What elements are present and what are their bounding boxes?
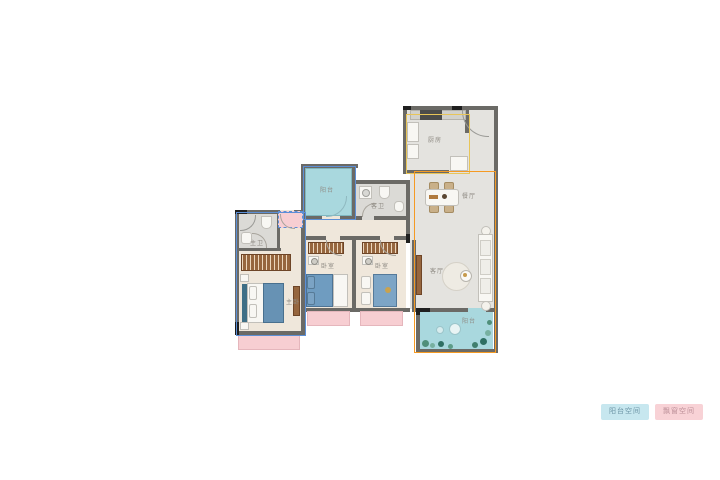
bedroom-b-label: 卧室 <box>375 264 389 271</box>
wall-bedroom-divider <box>352 240 356 312</box>
plant-icon <box>485 330 491 336</box>
bedroom-a-bay-window <box>307 311 350 326</box>
legend-bay-window-space[interactable]: 飘窗空间 <box>655 404 703 420</box>
kitchen-label: 厨房 <box>428 138 442 145</box>
wall-accent-bedroom-b <box>406 234 410 243</box>
master-bay-window <box>238 335 300 350</box>
floor-plan: 厨房 餐厅 客厅 阳台 阳台 客卫 主卫 主卧 卧室 卧室 <box>222 104 500 362</box>
wall-master-bath-bottom <box>239 248 281 251</box>
pillow-icon <box>249 286 257 300</box>
bedroom-a-label: 卧室 <box>321 264 335 271</box>
dining-table-runner <box>429 195 438 199</box>
plant-icon <box>480 338 487 345</box>
plant-icon <box>487 320 492 325</box>
bedroom-a-pillow <box>307 292 315 305</box>
sofa-cushion <box>480 259 491 275</box>
balcony-stool-icon <box>436 326 444 334</box>
balcony-table-icon <box>449 323 461 335</box>
plant-icon <box>430 343 435 348</box>
master-bed-blanket <box>263 283 284 323</box>
plant-icon <box>438 341 444 347</box>
fridge-icon <box>407 122 419 142</box>
toilet-icon <box>261 216 272 229</box>
pillow-icon <box>249 304 257 318</box>
dining-centerpiece-icon <box>442 194 447 199</box>
sofa-cushion <box>480 278 491 294</box>
north-balcony-label: 阳台 <box>320 188 334 195</box>
master-bath-label: 主卫 <box>250 241 264 248</box>
pillow-icon <box>361 276 371 289</box>
ac-fan-icon <box>365 258 372 265</box>
ac-fan-icon <box>311 258 318 265</box>
washing-machine-drum-icon <box>362 189 370 197</box>
dining-chair <box>444 205 454 213</box>
wall-balcony-bath-divider <box>352 164 356 220</box>
master-wardrobe <box>241 254 291 271</box>
bedroom-a-bed <box>333 274 348 307</box>
coffee-table-deco-icon <box>463 273 467 277</box>
wall-left-outer <box>235 210 239 335</box>
tv-console <box>416 255 422 295</box>
side-table-icon <box>481 301 491 311</box>
nightstand-icon <box>240 274 249 282</box>
guest-bath-label: 客卫 <box>371 204 385 211</box>
page-canvas: { "rooms": { "kitchen": { "label": "厨房" … <box>0 0 720 480</box>
sofa-cushion <box>480 240 491 256</box>
dining-chair <box>429 205 439 213</box>
bedroom-b-bay-window <box>360 311 403 326</box>
plant-icon <box>422 340 429 347</box>
kitchen-island-counter <box>450 156 468 171</box>
wall-accent-master-topleft <box>235 210 247 214</box>
dining-label: 餐厅 <box>462 194 476 201</box>
master-bedroom-label: 主卧 <box>286 300 300 307</box>
wall-south-balcony-bottom <box>416 349 494 353</box>
bath-sink-icon <box>394 201 404 212</box>
wall-guest-bath-right <box>406 180 410 240</box>
bedroom-a-pillow <box>307 276 315 289</box>
plant-icon <box>448 344 453 349</box>
plant-icon <box>472 342 478 348</box>
wall-master-right <box>301 214 305 335</box>
legend-balcony-space[interactable]: 阳台空间 <box>601 404 649 420</box>
stove-icon <box>420 110 442 120</box>
nightstand-icon <box>240 322 249 330</box>
wall-guest-bath-top <box>356 180 408 184</box>
wall-right-outer <box>494 106 498 353</box>
bed-deco-plant-icon <box>385 287 391 293</box>
wall-accent-master-left <box>235 322 239 335</box>
south-balcony-label: 阳台 <box>462 319 476 326</box>
toilet-icon <box>379 186 390 199</box>
wall-kitchen-bottom <box>403 170 449 174</box>
kitchen-sink-icon <box>407 144 419 159</box>
living-label: 客厅 <box>430 269 444 276</box>
pillow-icon <box>361 292 371 305</box>
